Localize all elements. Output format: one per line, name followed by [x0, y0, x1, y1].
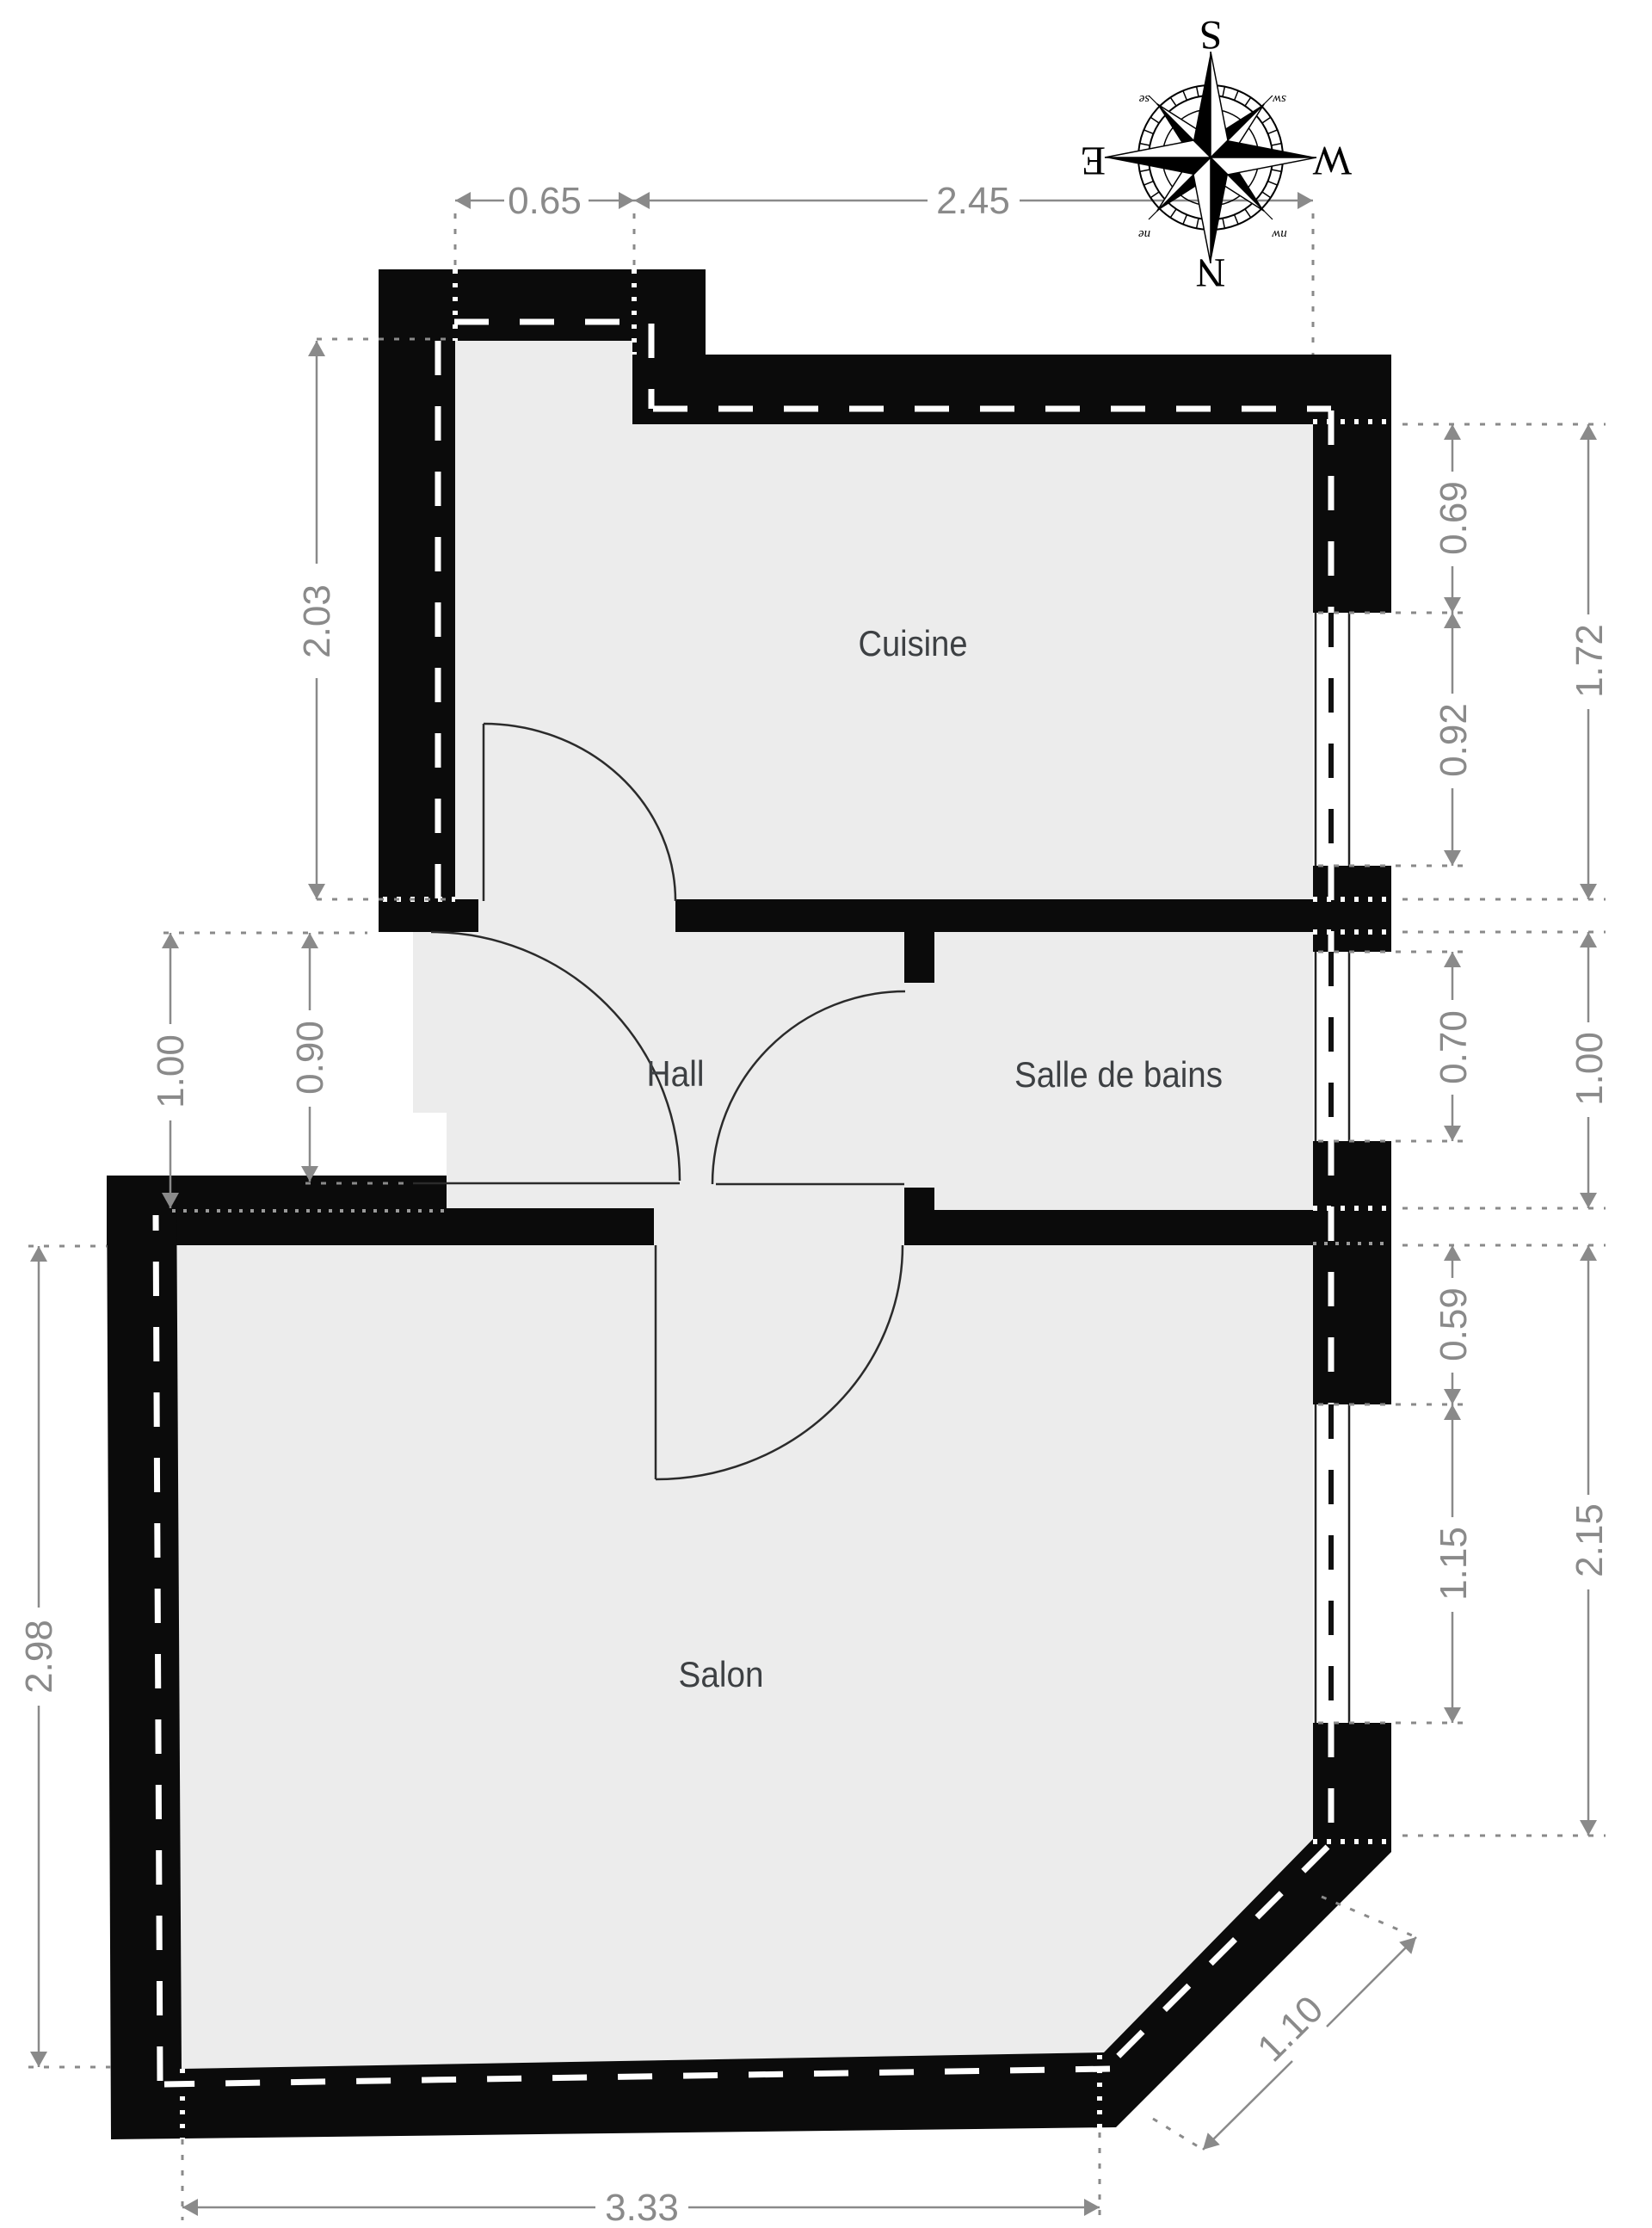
- svg-text:ne: ne: [1138, 227, 1151, 241]
- svg-text:se: se: [1138, 92, 1150, 106]
- svg-text:nw: nw: [1272, 227, 1287, 241]
- svg-text:Salon: Salon: [679, 1654, 764, 1694]
- svg-text:1.72: 1.72: [1569, 624, 1611, 698]
- svg-text:3.33: 3.33: [605, 2187, 679, 2228]
- svg-text:E: E: [1081, 138, 1106, 183]
- svg-text:Cuisine: Cuisine: [859, 623, 968, 663]
- svg-text:1.15: 1.15: [1433, 1527, 1475, 1601]
- svg-text:0.65: 0.65: [508, 180, 582, 222]
- svg-text:Hall: Hall: [647, 1053, 705, 1094]
- svg-text:0.59: 0.59: [1433, 1287, 1475, 1361]
- svg-text:2.45: 2.45: [936, 180, 1010, 222]
- svg-text:2.15: 2.15: [1569, 1503, 1611, 1577]
- svg-text:0.69: 0.69: [1433, 481, 1475, 555]
- svg-text:1.00: 1.00: [1569, 1032, 1611, 1106]
- svg-text:Salle de bains: Salle de bains: [1014, 1054, 1223, 1095]
- svg-text:0.90: 0.90: [289, 1021, 331, 1095]
- svg-text:N: N: [1196, 250, 1226, 295]
- svg-text:1.00: 1.00: [150, 1034, 192, 1108]
- svg-text:sw: sw: [1273, 92, 1286, 106]
- svg-text:0.92: 0.92: [1433, 703, 1475, 777]
- svg-text:0.70: 0.70: [1433, 1010, 1475, 1084]
- svg-text:2.03: 2.03: [296, 584, 338, 658]
- svg-text:S: S: [1199, 12, 1223, 58]
- svg-text:2.98: 2.98: [18, 1620, 60, 1694]
- svg-text:W: W: [1312, 138, 1352, 183]
